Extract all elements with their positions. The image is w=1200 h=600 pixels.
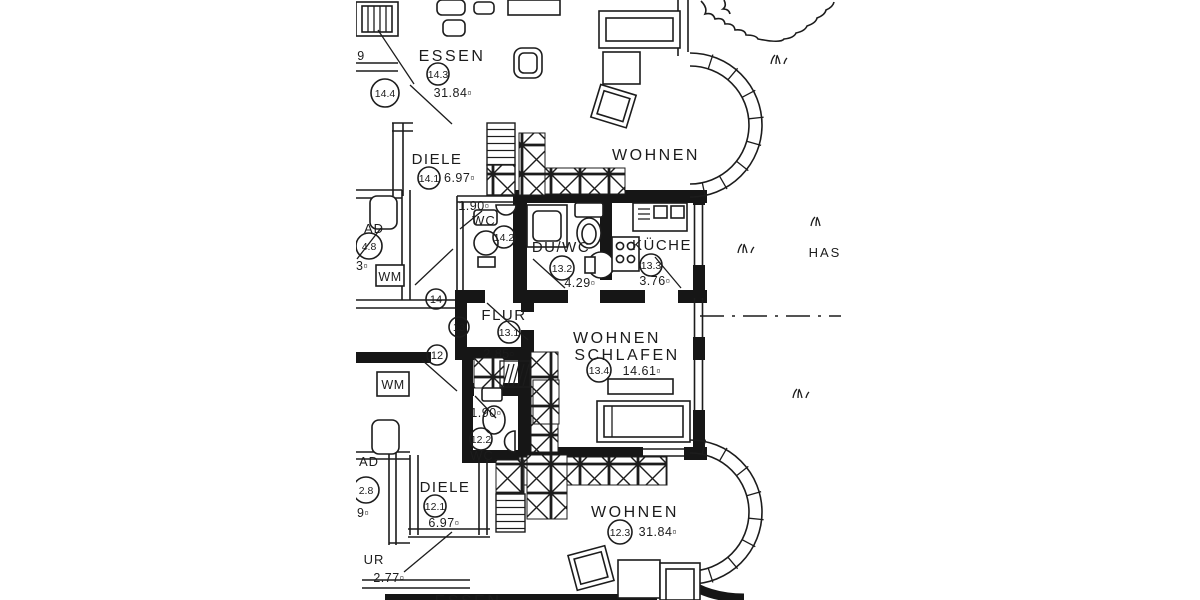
stair-level-bottom: 12 (431, 350, 443, 362)
room-id-diele-top: 14.1 (419, 173, 440, 185)
room-id-kueche: 13.3 (641, 260, 662, 272)
room-area-wohnen-schlafen: 14.61▫ (623, 364, 662, 378)
room-label-wohnen-top: WOHNEN (612, 147, 700, 164)
bathtub-partial-bottom (372, 420, 399, 454)
room-label-wohnen-bottom: WOHNEN (591, 504, 679, 521)
left-margin (0, 0, 356, 600)
room-id-side: 14.4 (375, 88, 396, 100)
dim-bad-top-partial: 3▫ (356, 259, 368, 273)
room-area-diele-bottom: 6.97▫ (428, 516, 459, 530)
right-margin (842, 0, 1200, 600)
wm-mid-label: WM (381, 378, 404, 392)
room-label-essen-top: ESSEN (419, 48, 486, 65)
room-id-flur: 13.1 (499, 327, 520, 339)
dim-wc-top: 1.90▫ (458, 199, 489, 213)
room-label-flur-bottom-partial: UR (364, 552, 385, 567)
room-label-kueche: KÜCHE (632, 236, 692, 254)
wardrobe-bottom-diele (496, 494, 525, 532)
room-area-wohnen-bottom: 31.84▫ (639, 525, 678, 539)
stair-level-top: 14 (430, 294, 442, 306)
room-id-bad-top-partial: 4.8 (362, 241, 377, 253)
room-id-essen-top: 14.3 (428, 69, 449, 81)
room-id-diele-bottom: 12.1 (425, 501, 446, 513)
room-label-duwc: DU/WC (532, 239, 590, 256)
room-area-essen-top: 31.84▫ (434, 86, 473, 100)
dim-wc-bottom: 1.90▫ (470, 406, 501, 420)
room-label-wc-bottom: WC (470, 448, 494, 463)
room-label-diele-top: DIELE (412, 151, 463, 168)
room-id-wohnen-schlafen: 13.4 (589, 365, 610, 377)
wardrobe-top-diele (487, 123, 515, 195)
wm-top-label: WM (378, 270, 401, 284)
kitchen-counter (633, 203, 687, 231)
room-label-essen-bottom-partial: ESSEN (435, 593, 502, 600)
room-label-wohnen-schlafen-1: WOHNEN (573, 330, 661, 347)
room-area-diele-top: 6.97▫ (444, 171, 475, 185)
room-label-bad-bottom-partial: AD (359, 454, 379, 469)
dim-flur-bottom: 2.77▫ (373, 571, 404, 585)
dim-bad-bottom-partial: 9▫ (357, 506, 369, 520)
kitchen-cabinet-top-left (356, 2, 398, 36)
stair-level-mid: 13 (453, 322, 465, 334)
room-label-wc-top: WC (472, 213, 496, 228)
washing-machine-top: WM (376, 265, 404, 286)
room-area-duwc: 4.29▫ (564, 276, 595, 290)
room-id-wc-bottom: 12.2 (471, 434, 492, 446)
room-id-wohnen-bottom: 12.3 (610, 527, 631, 539)
scanned-floor-plan: WM WM ESSEN 14.3 31.84▫ 14.4 9 WOHNEN DI… (0, 0, 1200, 600)
site-label-partial: HAS (809, 245, 842, 260)
room-id-wc-top: 14.2 (494, 232, 515, 244)
room-area-flur: 2.85▫ (483, 347, 514, 361)
room-label-diele-bottom: DIELE (420, 479, 471, 496)
edge-mark: 9 (357, 49, 364, 63)
room-area-kueche: 3.76▫ (639, 274, 670, 288)
room-id-duwc: 13.2 (552, 263, 573, 275)
room-id-bad-bottom-partial: 2.8 (359, 485, 374, 497)
washing-machine-mid: WM (377, 372, 409, 396)
